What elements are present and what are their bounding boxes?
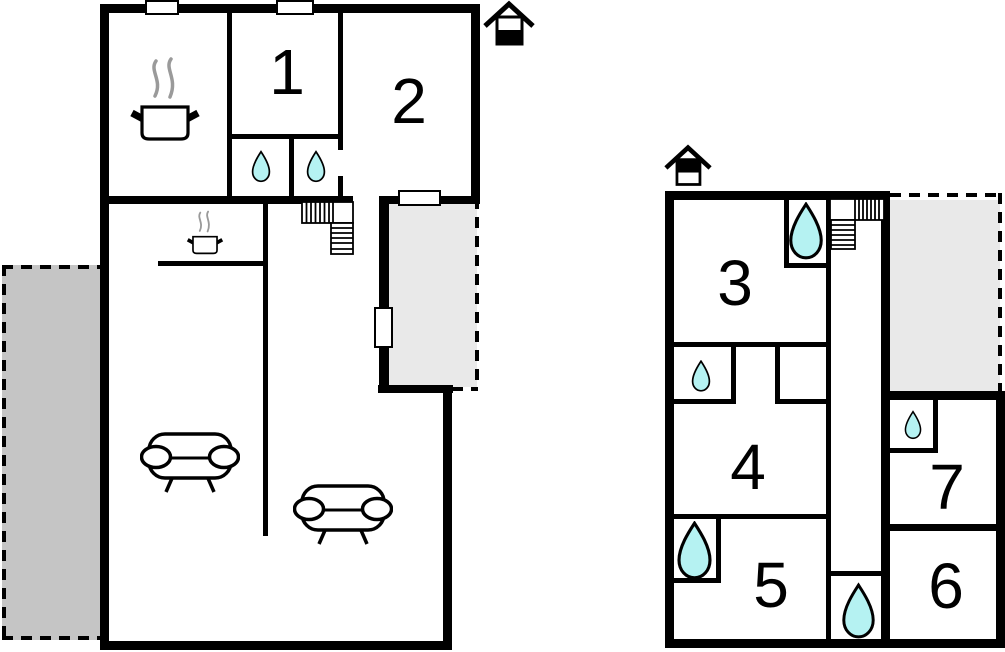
terrace-door [375,308,392,347]
water-drop-icon [308,152,325,182]
window [277,1,313,14]
room-label-4: 4 [730,435,766,499]
left-plan [2,1,533,650]
small-pot-icon [188,212,223,254]
sofa-icon [295,486,392,544]
upper-terrace-area [890,200,1000,391]
right-terrace-area [389,204,477,387]
water-drop-icon [693,361,710,391]
chimney-icon [666,148,710,185]
water-drop-icon [791,204,821,258]
water-drop-icon [253,152,270,182]
room-label-2: 2 [391,69,427,133]
left-terrace-area [2,265,100,640]
floor-plan-drawing [0,0,1005,652]
room-label-6: 6 [928,554,964,618]
room-label-1: 1 [269,40,305,104]
room-label-7: 7 [929,455,965,519]
chimney-icon [485,4,533,44]
stairs-icon [830,199,884,249]
water-drop-icon [844,585,873,637]
window [399,191,440,205]
room-label-3: 3 [717,251,753,315]
stairs-icon [302,202,353,254]
sofa-icon [142,434,239,492]
floor-plan-canvas: 1 2 3 4 5 6 7 [0,0,1005,652]
stove-pot-icon [132,59,198,139]
water-drop-icon [679,523,710,578]
room-label-5: 5 [753,553,789,617]
water-drop-icon [905,412,920,439]
window [146,1,178,14]
